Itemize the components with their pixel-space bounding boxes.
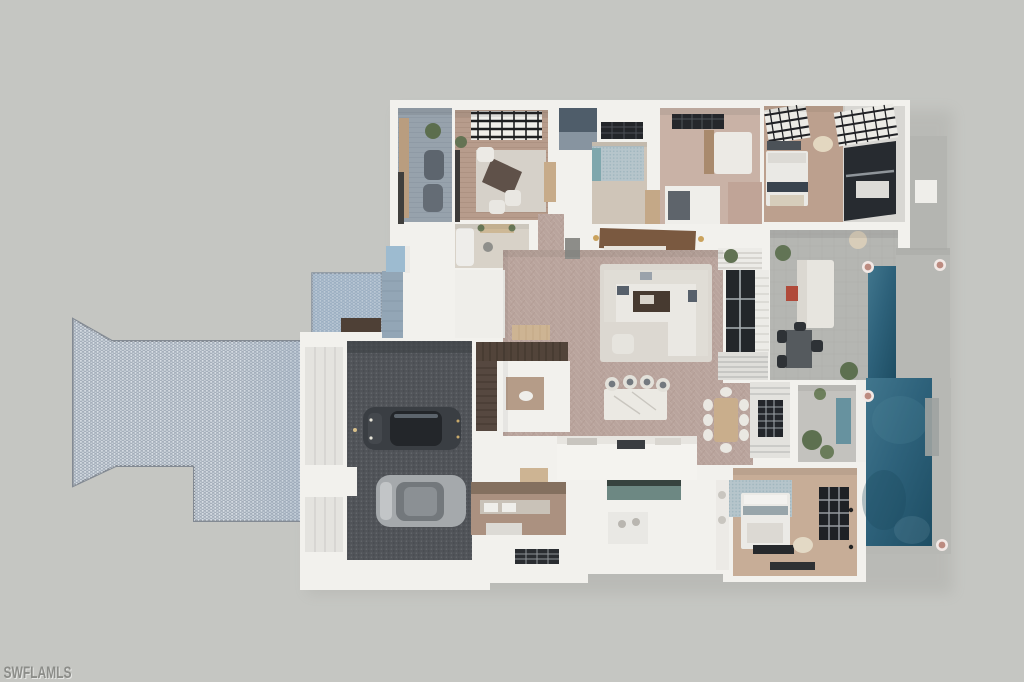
svg-text:SWFLAMLS: SWFLAMLS xyxy=(4,663,72,682)
